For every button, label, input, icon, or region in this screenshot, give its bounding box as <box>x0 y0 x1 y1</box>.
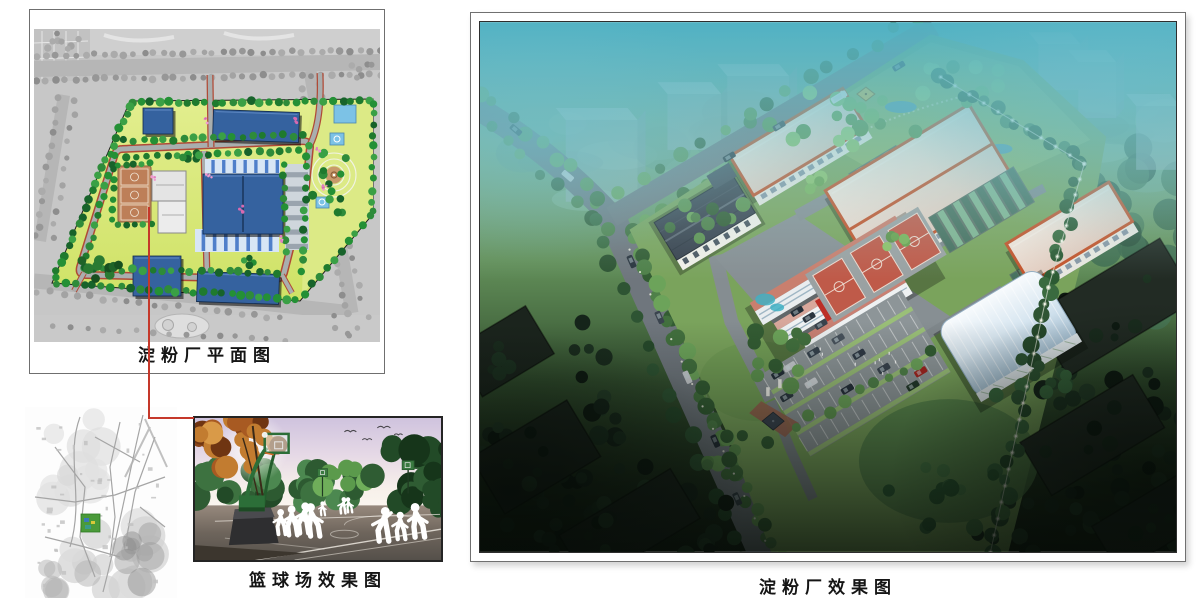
aerial-caption: 淀粉厂效果图 <box>470 573 1186 598</box>
basketball-caption: 篮球场效果图 <box>193 566 443 591</box>
aerial-rendering-frame <box>479 21 1177 553</box>
aerial-rendering-graphic <box>480 22 1176 552</box>
connector-line-vertical <box>148 207 150 418</box>
map-site-highlight <box>81 514 100 532</box>
basketball-photo <box>193 416 443 562</box>
presentation-board: { "board": { "title_visible_text_only": … <box>0 0 1200 600</box>
basketball-rendering-graphic <box>195 418 441 560</box>
site-plan-caption: 淀粉厂平面图 <box>29 345 385 367</box>
connector-line-horizontal <box>148 417 194 419</box>
aerial-rendering-panel <box>470 12 1186 562</box>
site-plan-panel <box>29 9 385 374</box>
site-plan-graphic <box>34 29 380 342</box>
location-map-graphic <box>25 407 177 598</box>
